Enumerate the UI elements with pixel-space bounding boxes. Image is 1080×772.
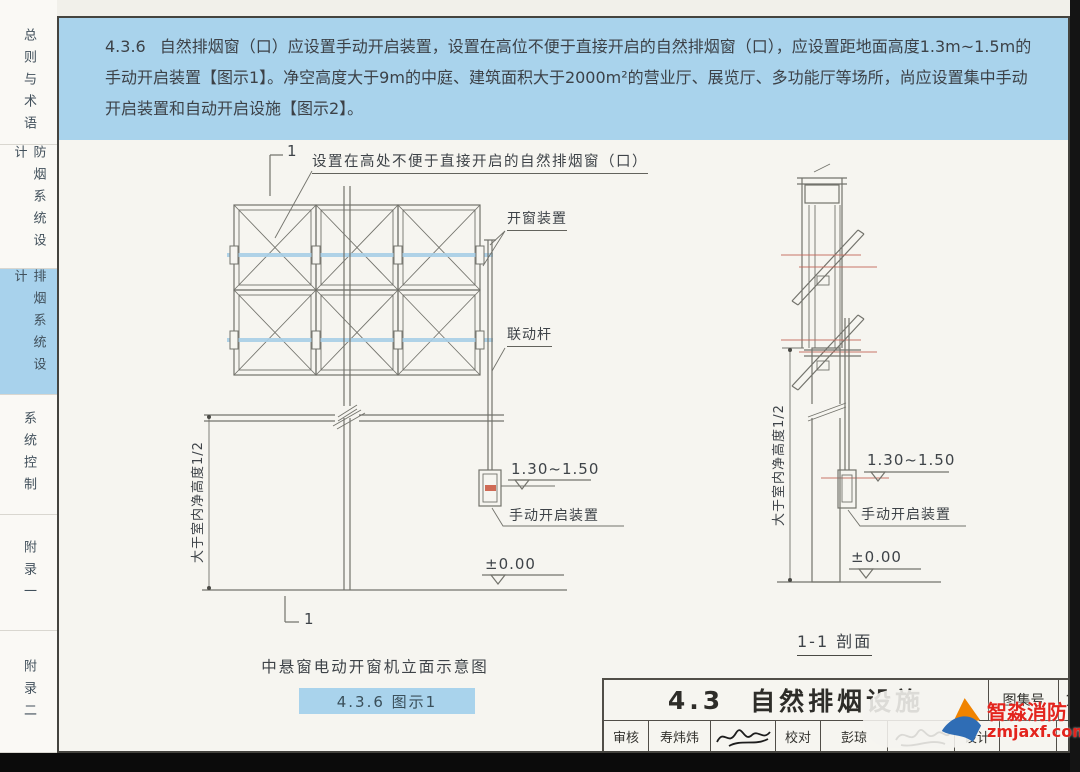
watermark-text: 智淼消防 zmjaxf.com xyxy=(987,701,1080,741)
elev-manual-right: 1.30~1.50 xyxy=(867,451,955,469)
figure2-caption: 1-1 剖面 xyxy=(797,628,872,656)
tab-appendix-1: 附录一 xyxy=(0,514,57,630)
annotation-manual-device-left: 手动开启装置 xyxy=(509,505,599,525)
annotation-manual-device-right: 手动开启装置 xyxy=(861,504,951,524)
annotation-linkage-rod: 联动杆 xyxy=(507,324,552,347)
elev-manual-left: 1.30~1.50 xyxy=(511,460,599,478)
sheet-frame: 4.3.6自然排烟窗（口）应设置手动开启装置，设置在高位不便于直接开启的自然排烟… xyxy=(57,16,1070,753)
section-marker-bottom: 1 xyxy=(304,610,315,628)
sheet-section-no: 4.3 xyxy=(668,686,724,715)
watermark-url: zmjaxf.com xyxy=(987,723,1080,741)
reviewer-name: 寿炜炜 xyxy=(649,721,711,752)
checker-label: 校对 xyxy=(776,721,821,752)
site-watermark: 智淼消防 zmjaxf.com xyxy=(940,697,1080,745)
dim-room-height-left: 大于室内净高度1/2 xyxy=(187,417,203,587)
tab-label: 防烟系统设计 xyxy=(10,145,48,268)
elev-ground-left: ±0.00 xyxy=(485,555,536,573)
tab-label: 附录一 xyxy=(19,540,38,606)
tab-appendix-2: 附录二 xyxy=(0,630,57,753)
annotation-high-window: 设置在高处不便于直接开启的自然排烟窗（口） xyxy=(312,150,648,174)
tab-label: 总则与术语 xyxy=(19,28,38,138)
tab-general-terms: 总则与术语 xyxy=(0,22,57,144)
tab-smoke-protection-design: 防烟系统设计 xyxy=(0,144,57,268)
photo-edge-right xyxy=(1070,0,1080,772)
figure1-caption: 中悬窗电动开窗机立面示意图 xyxy=(255,655,495,677)
dim-room-height-right: 大于室内净高度1/2 xyxy=(768,380,784,550)
tab-label: 附录二 xyxy=(19,659,38,725)
section-marker-top: 1 xyxy=(287,142,298,160)
tab-system-control: 系统控制 xyxy=(0,394,57,514)
signature-icon xyxy=(713,724,773,750)
scanned-atlas-page: 总则与术语 防烟系统设计 排烟系统设计 系统控制 附录一 附录二 4.3.6自然… xyxy=(0,0,1080,772)
zmjaxf-logo xyxy=(940,697,982,745)
reviewer-signature xyxy=(711,721,776,752)
reviewer-label: 审核 xyxy=(604,721,649,752)
window-grid xyxy=(227,205,493,375)
annotation-opener: 开窗装置 xyxy=(507,208,567,231)
tab-smoke-exhaust-design: 排烟系统设计 xyxy=(0,268,57,394)
elev-ground-right: ±0.00 xyxy=(851,548,902,566)
tab-label: 系统控制 xyxy=(19,411,38,499)
figure1-tag: 4.3.6 图示1 xyxy=(299,688,475,714)
watermark-brand: 智淼消防 xyxy=(987,701,1080,723)
tab-label: 排烟系统设计 xyxy=(10,269,48,394)
photo-edge-bottom xyxy=(0,753,1080,772)
technical-drawing xyxy=(59,18,1067,750)
chapter-tab-sidebar: 总则与术语 防烟系统设计 排烟系统设计 系统控制 附录一 附录二 xyxy=(0,0,57,753)
